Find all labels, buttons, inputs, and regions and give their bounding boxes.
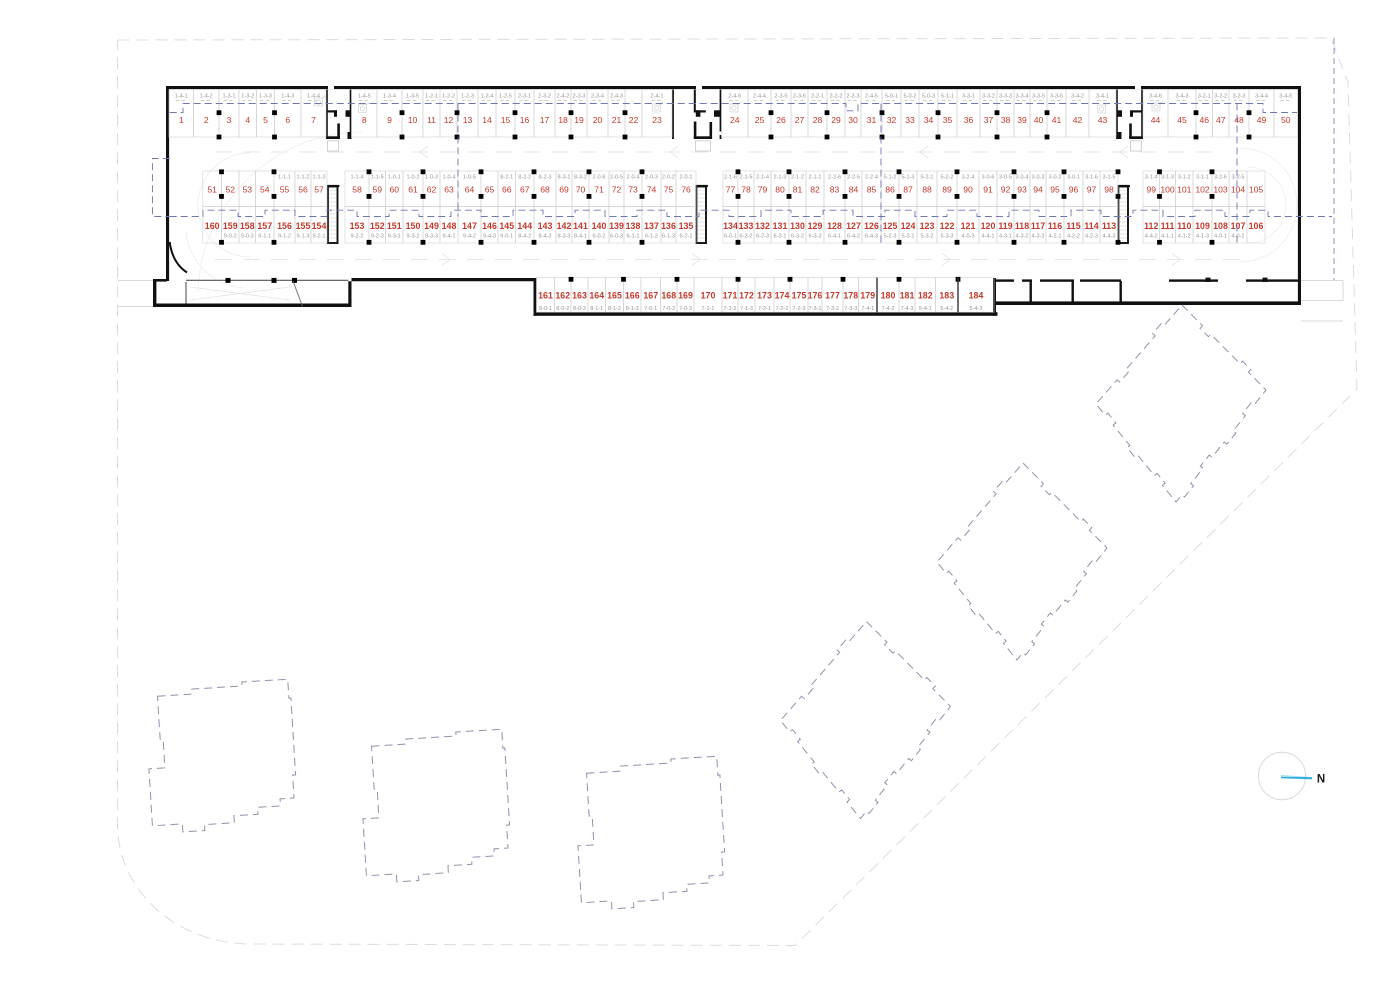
svg-text:2-2-2: 2-2-2 <box>829 93 842 99</box>
svg-text:118: 118 <box>1015 221 1029 231</box>
svg-text:1-3-5: 1-3-5 <box>406 93 419 99</box>
svg-text:127: 127 <box>846 221 861 231</box>
svg-text:3-4-6: 3-4-6 <box>1149 93 1162 99</box>
svg-text:4-2-3: 4-2-3 <box>1085 233 1098 239</box>
svg-text:3-4-2: 3-4-2 <box>1071 93 1084 99</box>
svg-text:9-4-2: 9-4-2 <box>463 233 476 239</box>
svg-text:168: 168 <box>661 291 676 301</box>
svg-text:9-1-2: 9-1-2 <box>278 233 291 239</box>
svg-text:5-4-2: 5-4-2 <box>940 306 953 312</box>
svg-text:120: 120 <box>981 221 996 231</box>
svg-text:7-2-2: 7-2-2 <box>775 306 788 312</box>
svg-text:176: 176 <box>808 291 823 301</box>
svg-text:2-4-5: 2-4-5 <box>865 93 878 99</box>
svg-text:7-4-2: 7-4-2 <box>881 306 894 312</box>
svg-text:126: 126 <box>864 221 879 231</box>
svg-text:9-0-3: 9-0-3 <box>241 233 254 239</box>
svg-text:52: 52 <box>225 185 235 195</box>
svg-text:123: 123 <box>920 221 935 231</box>
svg-text:5-3-2: 5-3-2 <box>920 233 933 239</box>
svg-text:3-1-6: 3-1-6 <box>1085 175 1098 181</box>
svg-text:113: 113 <box>1102 221 1116 231</box>
svg-text:54: 54 <box>260 185 270 195</box>
svg-text:61: 61 <box>408 185 418 195</box>
svg-text:12: 12 <box>444 115 454 125</box>
svg-text:51: 51 <box>207 185 217 195</box>
svg-text:108: 108 <box>1213 221 1228 231</box>
svg-text:2-1-3: 2-1-3 <box>773 175 786 181</box>
svg-text:102: 102 <box>1195 185 1210 195</box>
svg-text:2-4-2: 2-4-2 <box>556 93 569 99</box>
svg-text:6-1-3: 6-1-3 <box>662 233 675 239</box>
svg-text:3-1-4: 3-1-4 <box>1145 175 1158 181</box>
svg-text:140: 140 <box>592 221 607 231</box>
svg-text:1-0-2: 1-0-2 <box>406 175 419 181</box>
svg-text:5-2-1: 5-2-1 <box>920 175 933 181</box>
svg-text:143: 143 <box>538 221 553 231</box>
svg-text:17: 17 <box>540 115 550 125</box>
svg-text:55: 55 <box>280 185 290 195</box>
svg-text:3-2-3: 3-2-3 <box>1232 93 1245 99</box>
svg-text:9-2-3: 9-2-3 <box>371 233 384 239</box>
svg-text:6-0-3: 6-0-3 <box>610 233 623 239</box>
svg-text:62: 62 <box>427 185 437 195</box>
svg-text:40: 40 <box>1034 115 1044 125</box>
svg-text:70: 70 <box>576 185 586 195</box>
svg-text:32: 32 <box>887 115 897 125</box>
svg-text:5-1-1: 5-1-1 <box>941 93 954 99</box>
svg-text:4-4-2: 4-4-2 <box>1145 233 1158 239</box>
svg-text:153: 153 <box>350 221 365 231</box>
svg-text:2-2-6: 2-2-6 <box>828 175 841 181</box>
svg-text:24: 24 <box>730 115 740 125</box>
svg-text:150: 150 <box>406 221 421 231</box>
svg-text:1-4-2: 1-4-2 <box>200 93 213 99</box>
svg-text:3-2-6: 3-2-6 <box>1214 175 1227 181</box>
svg-text:3-0-4: 3-0-4 <box>1015 175 1028 181</box>
svg-text:161: 161 <box>538 291 553 301</box>
svg-text:165: 165 <box>607 291 622 301</box>
svg-text:7-0-2: 7-0-2 <box>662 306 675 312</box>
svg-text:76: 76 <box>681 185 691 195</box>
svg-text:48: 48 <box>1234 115 1244 125</box>
svg-text:2-3-5: 2-3-5 <box>774 93 787 99</box>
svg-text:183: 183 <box>939 291 954 301</box>
svg-text:69: 69 <box>559 185 569 195</box>
svg-text:3-1-5: 3-1-5 <box>1102 175 1115 181</box>
svg-text:N: N <box>1317 774 1325 786</box>
svg-text:170: 170 <box>701 291 716 301</box>
svg-text:1-0-3: 1-0-3 <box>425 175 438 181</box>
svg-text:27: 27 <box>795 115 805 125</box>
svg-text:180: 180 <box>881 291 896 301</box>
svg-text:5-0-1: 5-0-1 <box>885 93 898 99</box>
svg-text:3-1-1: 3-1-1 <box>1196 175 1209 181</box>
svg-text:3-4-5: 3-4-5 <box>1279 93 1292 99</box>
svg-text:5-3-3: 5-3-3 <box>940 233 953 239</box>
svg-text:4-0-2: 4-0-2 <box>1231 233 1244 239</box>
svg-text:6-1-1: 6-1-1 <box>626 233 639 239</box>
svg-text:34: 34 <box>924 115 934 125</box>
svg-text:1-3-1: 1-3-1 <box>222 93 235 99</box>
svg-text:148: 148 <box>442 221 457 231</box>
svg-text:2-3-1: 2-3-1 <box>518 93 531 99</box>
svg-text:1-1-2: 1-1-2 <box>296 175 309 181</box>
svg-text:1: 1 <box>179 115 184 125</box>
svg-text:22: 22 <box>629 115 639 125</box>
svg-text:3-3-1: 3-3-1 <box>962 93 975 99</box>
svg-text:39: 39 <box>1017 115 1027 125</box>
svg-text:122: 122 <box>940 221 955 231</box>
svg-text:6-4-1: 6-4-1 <box>828 233 841 239</box>
svg-text:158: 158 <box>240 221 255 231</box>
svg-text:15: 15 <box>501 115 511 125</box>
svg-text:9-4-3: 9-4-3 <box>483 233 496 239</box>
svg-text:1-1-3: 1-1-3 <box>312 175 325 181</box>
svg-text:3-3-2: 3-3-2 <box>982 93 995 99</box>
svg-text:25: 25 <box>755 115 765 125</box>
svg-text:106: 106 <box>1249 221 1264 231</box>
svg-text:8-4-1: 8-4-1 <box>574 233 587 239</box>
svg-text:107: 107 <box>1231 221 1246 231</box>
svg-text:112: 112 <box>1144 221 1158 231</box>
svg-text:132: 132 <box>755 221 770 231</box>
svg-text:8-0-1: 8-0-1 <box>539 306 552 312</box>
svg-text:36: 36 <box>964 115 974 125</box>
svg-text:46: 46 <box>1199 115 1209 125</box>
svg-text:53: 53 <box>242 185 252 195</box>
svg-text:2-4-3: 2-4-3 <box>610 93 623 99</box>
svg-text:94: 94 <box>1033 185 1043 195</box>
svg-text:4-4-1: 4-4-1 <box>981 233 994 239</box>
svg-text:4-1-3: 4-1-3 <box>1196 233 1209 239</box>
svg-text:152: 152 <box>370 221 385 231</box>
svg-text:2-4-4: 2-4-4 <box>753 93 766 99</box>
svg-text:3-0-6: 3-0-6 <box>981 175 994 181</box>
svg-text:159: 159 <box>223 221 238 231</box>
svg-text:110: 110 <box>1177 221 1191 231</box>
svg-text:2-0-1: 2-0-1 <box>679 175 692 181</box>
svg-text:75: 75 <box>664 185 674 195</box>
svg-text:172: 172 <box>739 291 754 301</box>
svg-text:117: 117 <box>1031 221 1045 231</box>
svg-text:10: 10 <box>408 115 418 125</box>
svg-text:77: 77 <box>726 185 736 195</box>
svg-text:116: 116 <box>1048 221 1062 231</box>
svg-text:2-0-5: 2-0-5 <box>610 175 623 181</box>
svg-text:2-2-1: 2-2-1 <box>811 93 824 99</box>
svg-text:26: 26 <box>776 115 786 125</box>
svg-text:101: 101 <box>1177 185 1192 195</box>
svg-text:93: 93 <box>1017 185 1027 195</box>
svg-text:1-3-2: 1-3-2 <box>241 93 254 99</box>
svg-text:7-3-1: 7-3-1 <box>808 306 821 312</box>
svg-text:3-3-5: 3-3-5 <box>1032 93 1045 99</box>
svg-text:37: 37 <box>984 115 994 125</box>
svg-text:5-0-2: 5-0-2 <box>903 93 916 99</box>
svg-text:157: 157 <box>257 221 272 231</box>
svg-text:4-0-3: 4-0-3 <box>961 233 974 239</box>
svg-text:9-3-3: 9-3-3 <box>425 233 438 239</box>
svg-text:1-3-3: 1-3-3 <box>259 93 272 99</box>
svg-text:5-2-2: 5-2-2 <box>940 175 953 181</box>
svg-text:2-0-3: 2-0-3 <box>645 175 658 181</box>
svg-text:3-2-2: 3-2-2 <box>1214 93 1227 99</box>
svg-text:41: 41 <box>1052 115 1062 125</box>
svg-text:160: 160 <box>205 221 220 231</box>
svg-text:30: 30 <box>848 115 858 125</box>
svg-text:1-4-1: 1-4-1 <box>175 93 188 99</box>
svg-text:109: 109 <box>1195 221 1210 231</box>
svg-text:7-2-3: 7-2-3 <box>792 306 805 312</box>
svg-text:3: 3 <box>227 115 232 125</box>
svg-text:3-4-3: 3-4-3 <box>1175 93 1188 99</box>
svg-text:6-3-1: 6-3-1 <box>773 233 786 239</box>
svg-text:49: 49 <box>1257 115 1267 125</box>
svg-text:90: 90 <box>963 185 973 195</box>
svg-text:3-2-1: 3-2-1 <box>1198 93 1211 99</box>
svg-text:20: 20 <box>593 115 603 125</box>
svg-text:5-1-3: 5-1-3 <box>901 175 914 181</box>
svg-text:33: 33 <box>905 115 915 125</box>
svg-text:98: 98 <box>1104 185 1114 195</box>
svg-text:9: 9 <box>387 115 392 125</box>
svg-text:56: 56 <box>298 185 308 195</box>
svg-text:38: 38 <box>1001 115 1011 125</box>
svg-text:129: 129 <box>808 221 823 231</box>
svg-text:5-2-3: 5-2-3 <box>883 233 896 239</box>
svg-text:1-1-5: 1-1-5 <box>371 175 384 181</box>
svg-text:67: 67 <box>520 185 530 195</box>
svg-text:141: 141 <box>573 221 588 231</box>
svg-text:35: 35 <box>943 115 953 125</box>
svg-text:6-4-3: 6-4-3 <box>865 233 878 239</box>
svg-text:8-2-2: 8-2-2 <box>518 175 531 181</box>
svg-text:18: 18 <box>558 115 568 125</box>
svg-text:87: 87 <box>903 185 913 195</box>
svg-text:43: 43 <box>1098 115 1108 125</box>
svg-text:154: 154 <box>312 221 327 231</box>
svg-text:100: 100 <box>1160 185 1175 195</box>
svg-text:7-0-3: 7-0-3 <box>679 306 692 312</box>
svg-text:5-3-1: 5-3-1 <box>901 233 914 239</box>
svg-text:8-1-3: 8-1-3 <box>626 306 639 312</box>
svg-text:74: 74 <box>647 185 657 195</box>
svg-text:44: 44 <box>1151 115 1161 125</box>
svg-text:7-1-2: 7-1-2 <box>723 306 736 312</box>
svg-text:9-3-2: 9-3-2 <box>406 233 419 239</box>
svg-text:147: 147 <box>462 221 477 231</box>
svg-text:8-0-2: 8-0-2 <box>556 306 569 312</box>
svg-text:1-1-1: 1-1-1 <box>278 175 291 181</box>
svg-text:4-1-2: 4-1-2 <box>1178 233 1191 239</box>
svg-text:2-3-2: 2-3-2 <box>538 93 551 99</box>
svg-text:19: 19 <box>574 115 584 125</box>
svg-text:63: 63 <box>444 185 454 195</box>
svg-text:173: 173 <box>757 291 772 301</box>
svg-text:7-2-1: 7-2-1 <box>758 306 771 312</box>
svg-text:164: 164 <box>589 291 604 301</box>
svg-text:3-1-3: 3-1-3 <box>1161 175 1174 181</box>
svg-text:2-1-2: 2-1-2 <box>791 175 804 181</box>
svg-text:9-2-2: 9-2-2 <box>350 233 363 239</box>
svg-text:58: 58 <box>352 185 362 195</box>
svg-text:182: 182 <box>918 291 933 301</box>
svg-text:9-4-1: 9-4-1 <box>442 233 455 239</box>
svg-text:8: 8 <box>362 115 367 125</box>
svg-text:128: 128 <box>827 221 842 231</box>
svg-text:83: 83 <box>830 185 840 195</box>
svg-text:95: 95 <box>1050 185 1060 195</box>
svg-text:114: 114 <box>1084 221 1098 231</box>
svg-text:60: 60 <box>389 185 399 195</box>
svg-text:4-3-3: 4-3-3 <box>1031 233 1044 239</box>
svg-text:5-0-3: 5-0-3 <box>922 93 935 99</box>
svg-text:3-0-3: 3-0-3 <box>1031 175 1044 181</box>
svg-text:167: 167 <box>643 291 658 301</box>
svg-text:8-0-3: 8-0-3 <box>573 306 586 312</box>
svg-text:3-3-4: 3-3-4 <box>1015 93 1028 99</box>
svg-text:2-0-4: 2-0-4 <box>626 175 639 181</box>
svg-text:2-2-3: 2-2-3 <box>846 93 859 99</box>
svg-text:2-1-4: 2-1-4 <box>756 175 769 181</box>
svg-text:14: 14 <box>482 115 492 125</box>
svg-text:1-2-3: 1-2-3 <box>461 93 474 99</box>
svg-text:4: 4 <box>245 115 250 125</box>
svg-text:79: 79 <box>758 185 768 195</box>
svg-text:3-3-3: 3-3-3 <box>999 93 1012 99</box>
svg-text:82: 82 <box>810 185 820 195</box>
svg-text:184: 184 <box>969 291 984 301</box>
svg-text:4-2-2: 4-2-2 <box>1067 233 1080 239</box>
svg-text:5-4-1: 5-4-1 <box>919 306 932 312</box>
svg-text:28: 28 <box>813 115 823 125</box>
svg-text:1-0-5: 1-0-5 <box>463 175 476 181</box>
svg-text:2-1-5: 2-1-5 <box>739 175 752 181</box>
svg-text:4-0-1: 4-0-1 <box>1214 233 1227 239</box>
svg-text:177: 177 <box>825 291 840 301</box>
svg-text:119: 119 <box>998 221 1012 231</box>
svg-text:78: 78 <box>741 185 751 195</box>
svg-text:9-1-3: 9-1-3 <box>296 233 309 239</box>
svg-text:121: 121 <box>961 221 976 231</box>
svg-text:2-4-6: 2-4-6 <box>728 93 741 99</box>
svg-text:2-0-6: 2-0-6 <box>592 175 605 181</box>
svg-text:179: 179 <box>860 291 875 301</box>
svg-text:178: 178 <box>843 291 858 301</box>
svg-text:97: 97 <box>1087 185 1097 195</box>
svg-text:134: 134 <box>723 221 738 231</box>
svg-text:138: 138 <box>626 221 641 231</box>
svg-text:66: 66 <box>502 185 512 195</box>
svg-text:174: 174 <box>775 291 790 301</box>
svg-text:125: 125 <box>883 221 898 231</box>
svg-text:137: 137 <box>644 221 659 231</box>
svg-text:57: 57 <box>314 185 324 195</box>
svg-text:84: 84 <box>849 185 859 195</box>
svg-text:104: 104 <box>1231 185 1246 195</box>
svg-text:9-1-1: 9-1-1 <box>258 233 271 239</box>
svg-text:3-4-1: 3-4-1 <box>1096 93 1109 99</box>
svg-text:8-3-2: 8-3-2 <box>574 175 587 181</box>
svg-text:2-3-6: 2-3-6 <box>793 93 806 99</box>
svg-text:7-3-2: 7-3-2 <box>826 306 839 312</box>
svg-text:65: 65 <box>485 185 495 195</box>
svg-text:2-2-4: 2-2-4 <box>865 175 878 181</box>
svg-text:2-2-5: 2-2-5 <box>847 175 860 181</box>
svg-text:85: 85 <box>867 185 877 195</box>
svg-text:144: 144 <box>517 221 532 231</box>
svg-text:50: 50 <box>1281 115 1291 125</box>
svg-text:156: 156 <box>277 221 292 231</box>
svg-text:31: 31 <box>867 115 877 125</box>
svg-text:166: 166 <box>625 291 640 301</box>
svg-text:136: 136 <box>661 221 676 231</box>
svg-text:162: 162 <box>555 291 570 301</box>
svg-text:91: 91 <box>983 185 993 195</box>
svg-text:2: 2 <box>204 115 209 125</box>
svg-text:3-2-4: 3-2-4 <box>961 175 974 181</box>
svg-text:6-3-3: 6-3-3 <box>808 233 821 239</box>
svg-text:8-2-1: 8-2-1 <box>500 175 513 181</box>
svg-text:8-3-1: 8-3-1 <box>557 175 570 181</box>
svg-text:7-1-3: 7-1-3 <box>740 306 753 312</box>
svg-text:1-3-4: 1-3-4 <box>383 93 396 99</box>
svg-text:5: 5 <box>263 115 268 125</box>
svg-text:6-1-2: 6-1-2 <box>645 233 658 239</box>
svg-text:4-1-1: 4-1-1 <box>1161 233 1174 239</box>
svg-text:9-0-1: 9-0-1 <box>500 233 513 239</box>
svg-text:6-4-2: 6-4-2 <box>847 233 860 239</box>
svg-text:3-0-1: 3-0-1 <box>1067 175 1080 181</box>
svg-text:3-1-2: 3-1-2 <box>1178 175 1191 181</box>
svg-text:4-3-2: 4-3-2 <box>1015 233 1028 239</box>
svg-text:6-2-2: 6-2-2 <box>739 233 752 239</box>
svg-text:131: 131 <box>773 221 788 231</box>
svg-text:133: 133 <box>739 221 754 231</box>
svg-text:6-2-3: 6-2-3 <box>756 233 769 239</box>
svg-text:59: 59 <box>372 185 382 195</box>
svg-text:81: 81 <box>793 185 803 195</box>
svg-text:3-0-2: 3-0-2 <box>1048 175 1061 181</box>
svg-text:42: 42 <box>1073 115 1083 125</box>
svg-text:11: 11 <box>427 115 436 125</box>
svg-text:6: 6 <box>285 115 290 125</box>
svg-text:5-1-2: 5-1-2 <box>883 175 896 181</box>
svg-text:9-3-1: 9-3-1 <box>388 233 401 239</box>
svg-text:149: 149 <box>424 221 439 231</box>
svg-text:1-1-4: 1-1-4 <box>350 175 363 181</box>
svg-text:1-0-1: 1-0-1 <box>388 175 401 181</box>
svg-text:6-0-1: 6-0-1 <box>724 233 737 239</box>
svg-text:7: 7 <box>311 115 316 125</box>
svg-text:71: 71 <box>594 185 604 195</box>
svg-text:8-4-2: 8-4-2 <box>518 233 531 239</box>
svg-text:135: 135 <box>679 221 694 231</box>
svg-text:21: 21 <box>612 115 622 125</box>
svg-text:2-1-6: 2-1-6 <box>724 175 737 181</box>
svg-text:86: 86 <box>885 185 895 195</box>
svg-text:155: 155 <box>296 221 311 231</box>
svg-text:45: 45 <box>1177 115 1187 125</box>
svg-text:8-3-3: 8-3-3 <box>557 233 570 239</box>
svg-text:171: 171 <box>723 291 738 301</box>
svg-text:6-2-1: 6-2-1 <box>679 233 692 239</box>
svg-text:92: 92 <box>1001 185 1011 195</box>
svg-text:96: 96 <box>1069 185 1079 195</box>
svg-text:163: 163 <box>572 291 587 301</box>
svg-text:3-0-5: 3-0-5 <box>999 175 1012 181</box>
